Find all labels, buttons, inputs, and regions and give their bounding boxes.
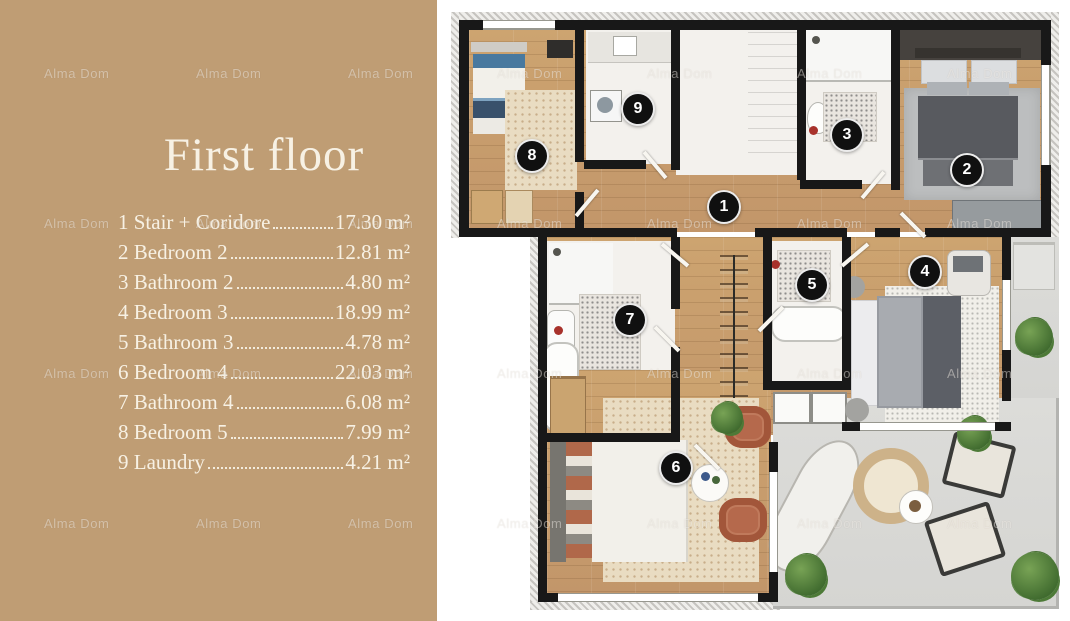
watermark-text: Alma Dom <box>196 216 261 231</box>
watermark-text: Alma Dom <box>947 216 1012 231</box>
watermark-text: Alma Dom <box>497 366 562 381</box>
watermark-text: Alma Dom <box>348 516 413 531</box>
watermark-text: Alma Dom <box>348 366 413 381</box>
watermark-text: Alma Dom <box>497 216 562 231</box>
watermark-text: Alma Dom <box>647 66 712 81</box>
watermark-text: Alma Dom <box>647 366 712 381</box>
watermark-text: Alma Dom <box>947 66 1012 81</box>
watermark-text: Alma Dom <box>196 516 261 531</box>
watermark-text: Alma Dom <box>647 216 712 231</box>
watermark-text: Alma Dom <box>348 66 413 81</box>
watermark-text: Alma Dom <box>44 516 109 531</box>
watermark-layer: Alma DomAlma DomAlma DomAlma DomAlma Dom… <box>0 0 1070 621</box>
watermark-text: Alma Dom <box>797 366 862 381</box>
watermark-text: Alma Dom <box>647 516 712 531</box>
watermark-text: Alma Dom <box>797 216 862 231</box>
watermark-text: Alma Dom <box>44 66 109 81</box>
watermark-text: Alma Dom <box>947 516 1012 531</box>
watermark-text: Alma Dom <box>196 366 261 381</box>
watermark-text: Alma Dom <box>497 516 562 531</box>
watermark-text: Alma Dom <box>196 66 261 81</box>
watermark-text: Alma Dom <box>797 516 862 531</box>
watermark-text: Alma Dom <box>44 216 109 231</box>
watermark-text: Alma Dom <box>947 366 1012 381</box>
watermark-text: Alma Dom <box>797 66 862 81</box>
watermark-text: Alma Dom <box>497 66 562 81</box>
watermark-text: Alma Dom <box>44 366 109 381</box>
watermark-text: Alma Dom <box>348 216 413 231</box>
